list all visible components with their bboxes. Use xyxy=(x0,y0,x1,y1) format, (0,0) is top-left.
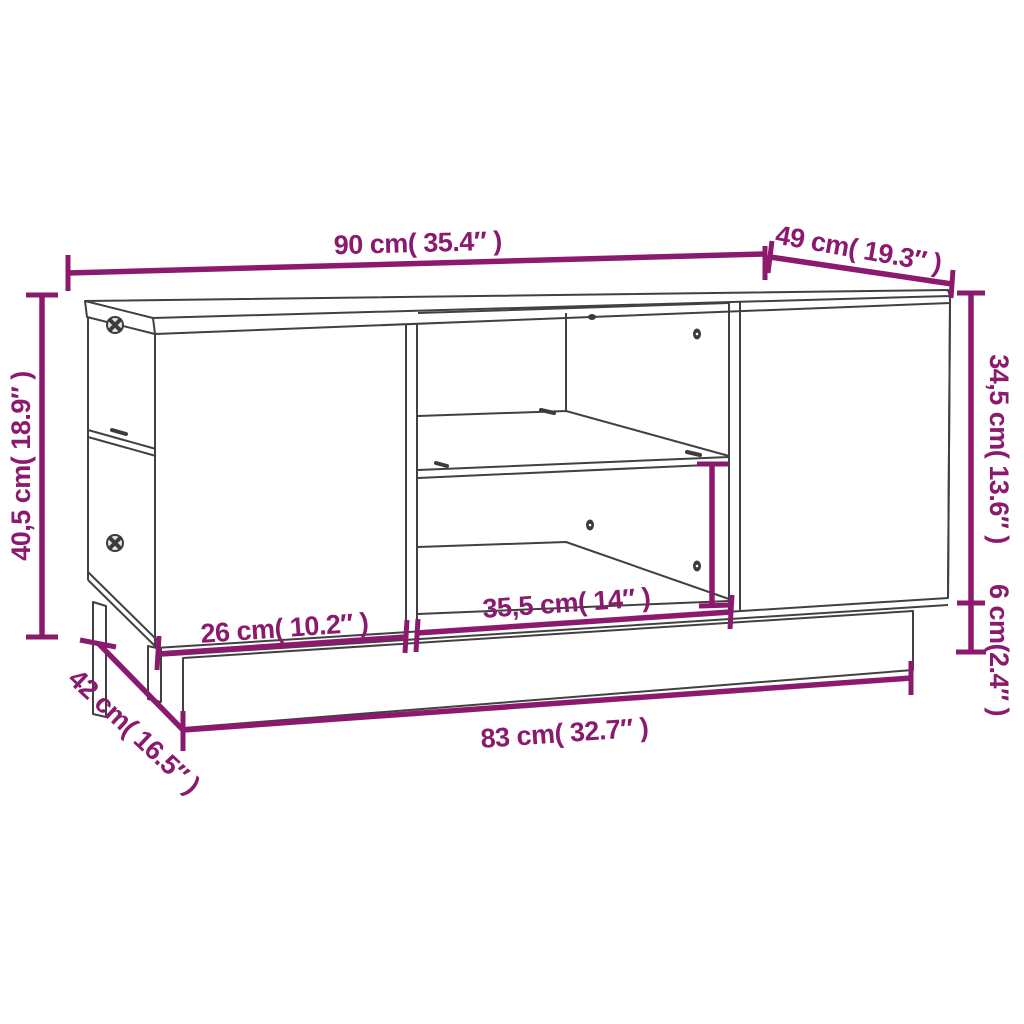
screw-mark-icon xyxy=(693,329,701,340)
coffee-table-drawing xyxy=(85,290,950,728)
screw-center-dot xyxy=(589,524,592,527)
screw-center-dot xyxy=(696,565,699,568)
middle-compartment xyxy=(418,303,729,614)
right-door-panel xyxy=(948,303,950,598)
screw-mark-icon xyxy=(586,520,594,531)
tabletop xyxy=(85,290,950,334)
dimension-right-upper-height-label: 34,5 cm( 13.6″ ) xyxy=(984,354,1014,544)
dimension-base-width-label: 83 cm( 32.7″ ) xyxy=(480,712,650,754)
dimension-diagram-page: 90 cm( 35.4″ ) 49 cm( 19.3″ ) 40,5 cm( 1… xyxy=(0,0,1024,1024)
dimension-top-width-label: 90 cm( 35.4″ ) xyxy=(333,226,502,260)
dimension-top-width: 90 cm( 35.4″ ) xyxy=(68,226,765,291)
dimension-left-height: 40,5 cm( 18.9″ ) xyxy=(6,295,58,637)
screw-mark-icon xyxy=(693,561,701,572)
dimension-top-depth: 49 cm( 19.3″ ) xyxy=(768,220,953,298)
dimension-caps xyxy=(80,640,116,647)
dimension-left-height-label: 40,5 cm( 18.9″ ) xyxy=(6,371,36,561)
dimension-right-upper-height: 34,5 cm( 13.6″ ) xyxy=(957,293,1014,603)
dimension-inner-height xyxy=(697,464,731,606)
dimension-caps xyxy=(730,595,732,629)
dimension-right-base-height-label: 6 cm(2.4″ ) xyxy=(984,584,1014,716)
coffee-table-dimension-diagram: 90 cm( 35.4″ ) 49 cm( 19.3″ ) 40,5 cm( 1… xyxy=(0,0,1024,1024)
dowel-mark-icon xyxy=(588,314,596,320)
screw-icon xyxy=(107,317,123,333)
screw-center-dot xyxy=(696,333,699,336)
screw-icon xyxy=(107,535,123,551)
